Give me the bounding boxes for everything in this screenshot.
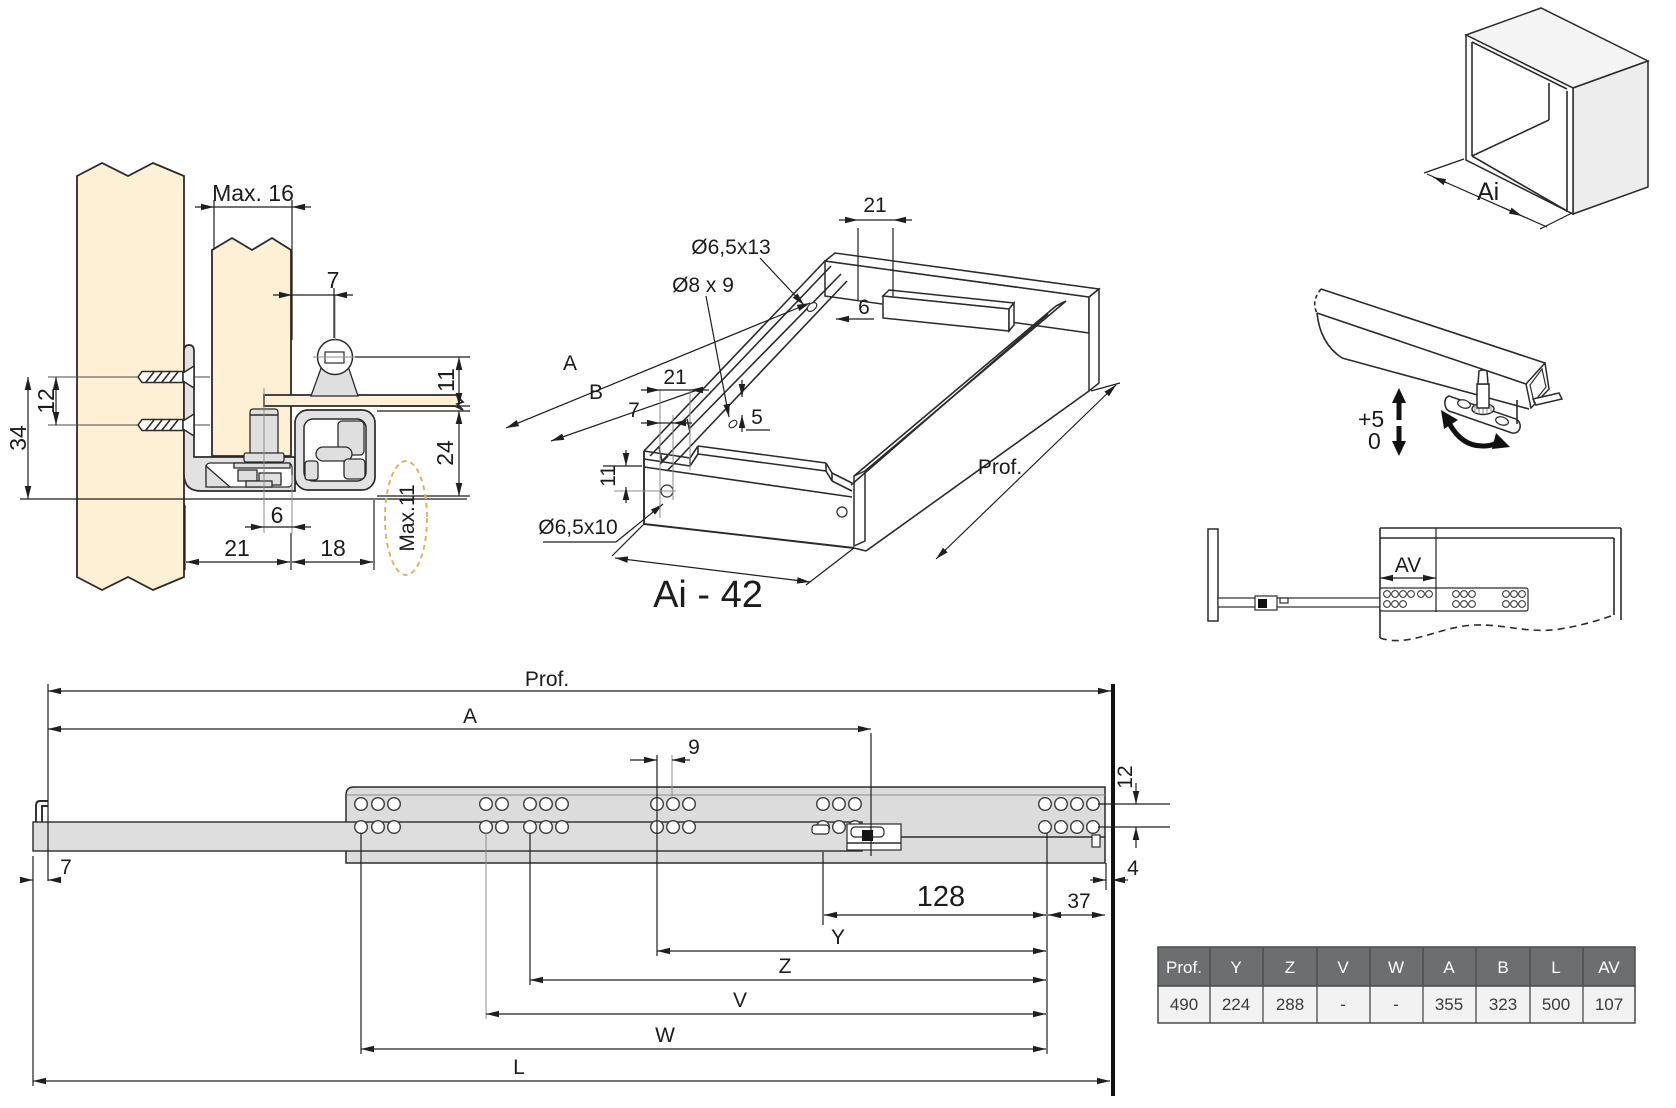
- svg-text:AV: AV: [1598, 958, 1620, 977]
- svg-text:224: 224: [1222, 995, 1250, 1014]
- svg-text:7: 7: [60, 856, 72, 879]
- svg-text:AV: AV: [1395, 554, 1421, 577]
- svg-text:0: 0: [1368, 428, 1381, 454]
- svg-text:-: -: [1340, 995, 1346, 1014]
- svg-text:18: 18: [320, 535, 346, 561]
- svg-text:11: 11: [433, 368, 459, 392]
- svg-text:B: B: [589, 381, 603, 404]
- svg-text:Ø6,5x10: Ø6,5x10: [538, 516, 617, 539]
- svg-text:7: 7: [628, 399, 640, 422]
- svg-text:4: 4: [1127, 857, 1139, 880]
- svg-text:W: W: [655, 1024, 675, 1047]
- svg-text:34: 34: [5, 425, 31, 451]
- svg-text:-: -: [1393, 995, 1399, 1014]
- svg-text:288: 288: [1276, 995, 1304, 1014]
- svg-text:37: 37: [1067, 890, 1090, 913]
- svg-text:11: 11: [597, 465, 620, 487]
- svg-text:Prof.: Prof.: [978, 456, 1022, 479]
- svg-text:Ai - 42: Ai - 42: [653, 574, 763, 616]
- svg-text:6: 6: [271, 502, 284, 528]
- svg-text:128: 128: [917, 881, 965, 913]
- svg-text:Max.11: Max.11: [396, 484, 419, 551]
- svg-text:500: 500: [1542, 995, 1570, 1014]
- svg-text:5: 5: [751, 406, 763, 429]
- svg-text:323: 323: [1489, 995, 1517, 1014]
- svg-text:Ø6,5x13: Ø6,5x13: [691, 236, 770, 259]
- svg-text:9: 9: [688, 736, 700, 759]
- svg-text:W: W: [1388, 958, 1404, 977]
- svg-text:7: 7: [327, 267, 340, 293]
- svg-text:21: 21: [663, 366, 686, 389]
- svg-text:24: 24: [432, 440, 458, 466]
- svg-text:Max. 16: Max. 16: [212, 180, 294, 206]
- svg-text:A: A: [1443, 958, 1455, 977]
- svg-text:107: 107: [1595, 995, 1623, 1014]
- svg-text:A: A: [563, 352, 577, 375]
- svg-text:Ø8 x 9: Ø8 x 9: [672, 274, 734, 297]
- svg-text:Z: Z: [1285, 958, 1295, 977]
- svg-text:355: 355: [1435, 995, 1463, 1014]
- svg-text:Prof.: Prof.: [1166, 958, 1202, 977]
- svg-text:A: A: [463, 705, 477, 728]
- svg-text:12: 12: [33, 388, 59, 414]
- svg-text:B: B: [1497, 958, 1508, 977]
- svg-text:490: 490: [1170, 995, 1198, 1014]
- svg-text:21: 21: [863, 194, 886, 217]
- svg-text:V: V: [1337, 958, 1349, 977]
- svg-text:Prof.: Prof.: [525, 668, 569, 691]
- svg-text:Z: Z: [779, 955, 792, 978]
- svg-text:Ai: Ai: [1477, 178, 1499, 206]
- svg-text:Y: Y: [831, 926, 845, 949]
- svg-text:V: V: [733, 989, 747, 1012]
- svg-text:12: 12: [1114, 765, 1137, 788]
- svg-text:L: L: [1551, 958, 1560, 977]
- svg-text:6: 6: [858, 296, 870, 319]
- svg-text:L: L: [513, 1056, 525, 1079]
- svg-text:Y: Y: [1230, 958, 1241, 977]
- svg-text:21: 21: [224, 535, 250, 561]
